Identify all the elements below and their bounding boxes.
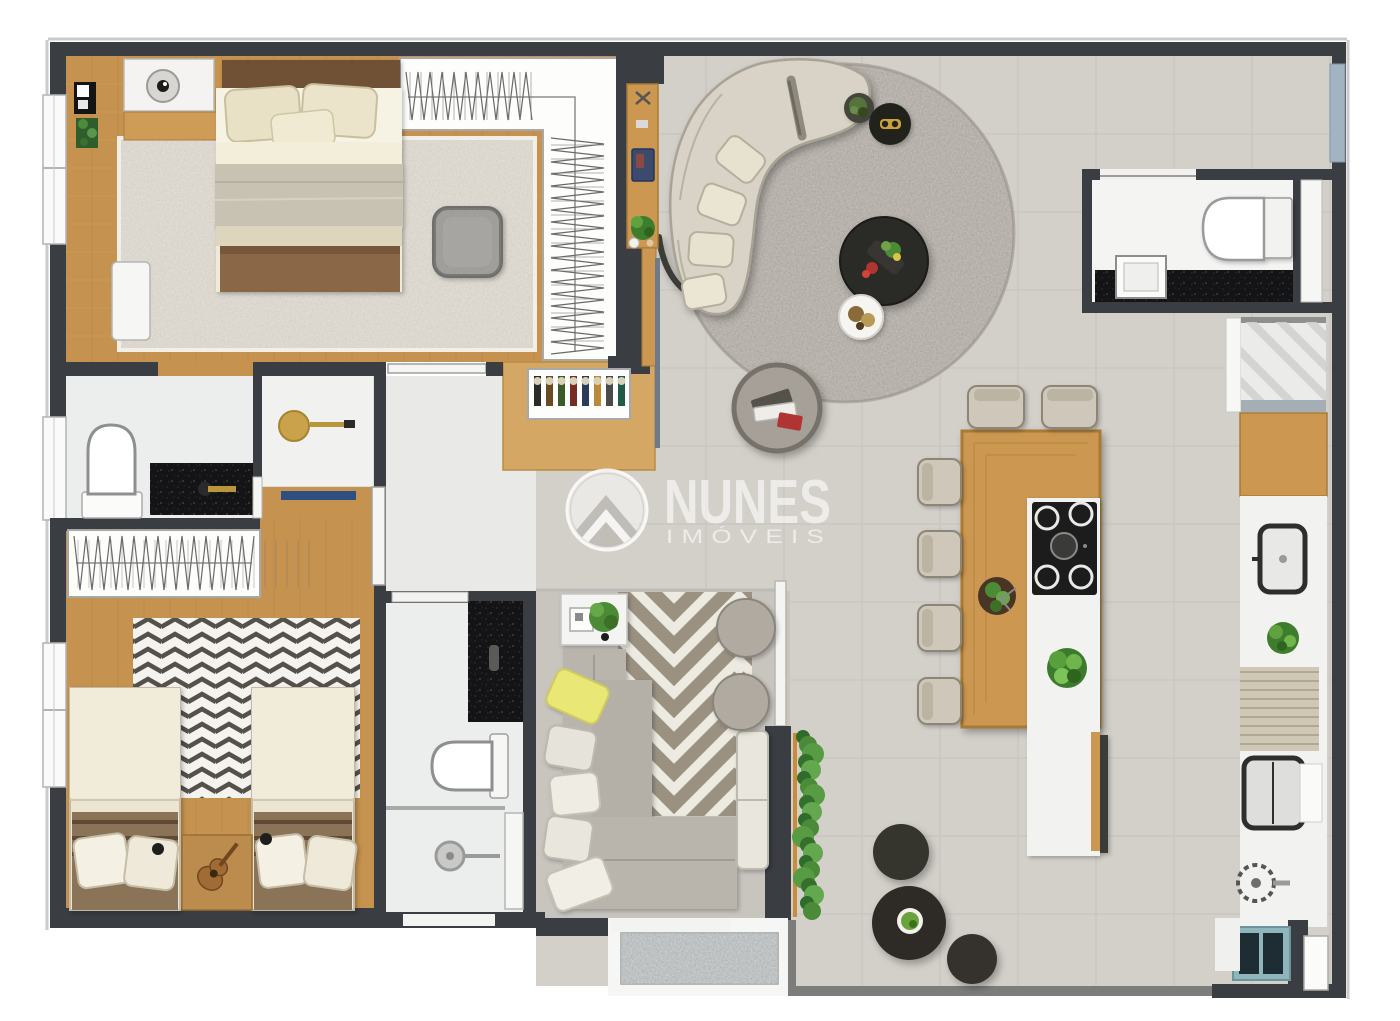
svg-text:IMÓVEIS: IMÓVEIS bbox=[666, 526, 832, 548]
